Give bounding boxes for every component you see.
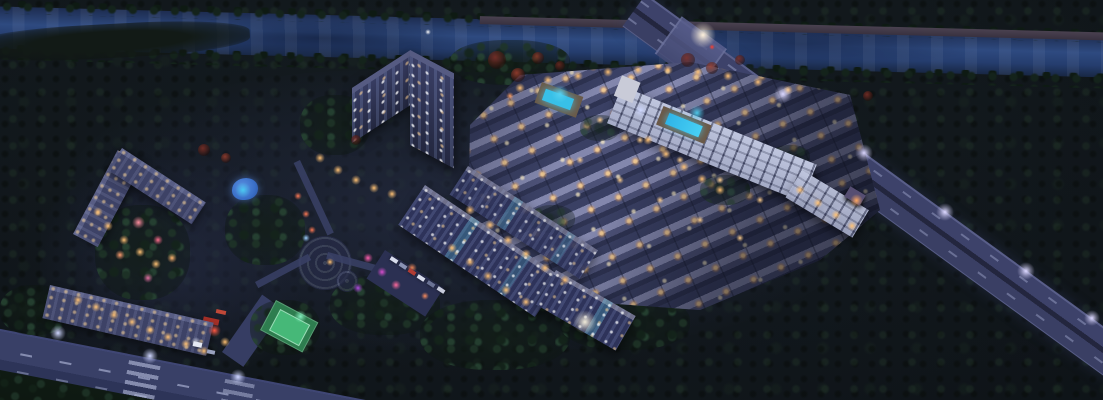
- zebra-crossing: [217, 379, 255, 400]
- circular-deck: [336, 270, 358, 292]
- swimming-pool: [542, 89, 574, 111]
- aerial-township-render: [0, 0, 1103, 400]
- ornamental-pool: [232, 178, 258, 200]
- villa-garden: [700, 175, 750, 205]
- tree-grove: [225, 195, 305, 265]
